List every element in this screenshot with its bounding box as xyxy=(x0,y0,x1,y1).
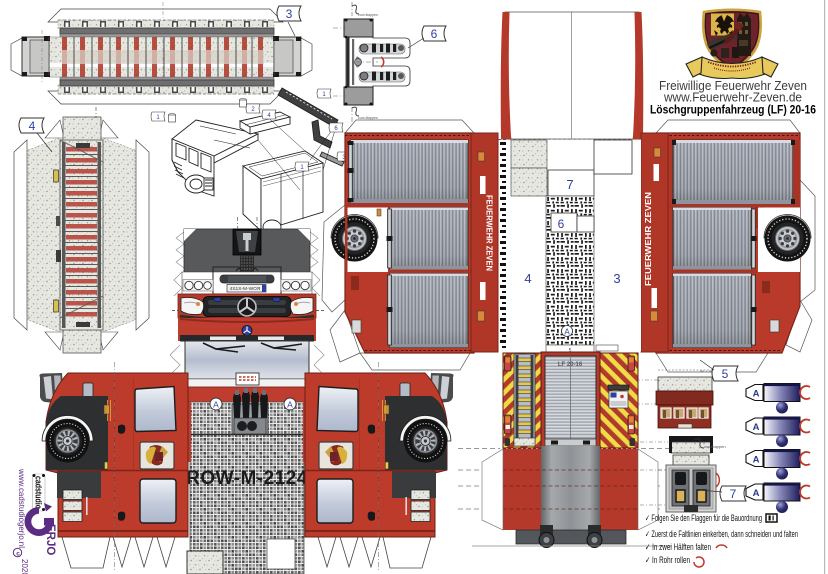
svg-text:A: A xyxy=(213,400,219,410)
svg-text:LF 20-16: LF 20-16 xyxy=(558,362,583,368)
svg-text:✓ In zwei Hälften falten: ✓ In zwei Hälften falten xyxy=(645,542,711,552)
svg-text:6: 6 xyxy=(558,217,565,231)
svg-text:c: c xyxy=(16,551,20,558)
svg-text:FEUERWEHR ZEVEN: FEUERWEHR ZEVEN xyxy=(644,192,653,286)
svg-text:3: 3 xyxy=(286,7,293,21)
svg-text:FEUERWEHR ZEVEN: FEUERWEHR ZEVEN xyxy=(485,195,494,271)
svg-text:6: 6 xyxy=(431,27,438,41)
svg-text:zum klappen: zum klappen xyxy=(358,13,378,17)
svg-text:4: 4 xyxy=(524,271,531,286)
svg-text:ERJO: ERJO xyxy=(44,524,56,555)
svg-text:5: 5 xyxy=(722,367,729,381)
svg-text:7: 7 xyxy=(566,177,573,192)
svg-text:✓ In Rohr rollen: ✓ In Rohr rollen xyxy=(645,555,690,565)
svg-text:✓ Folgen Sie den Flaggen für d: ✓ Folgen Sie den Flaggen für die Bauordn… xyxy=(645,513,762,523)
svg-text:zum klappen: zum klappen xyxy=(358,116,378,120)
svg-text:2020: 2020 xyxy=(20,559,29,574)
svg-text:A: A xyxy=(564,328,570,337)
svg-text:✓ Zuerst die Faltlinien einker: ✓ Zuerst die Faltlinien einkerben, dann … xyxy=(645,529,798,539)
svg-text:A: A xyxy=(287,400,293,410)
svg-text:cadstudio: cadstudio xyxy=(33,476,44,509)
svg-text:3: 3 xyxy=(613,271,620,286)
svg-text:4S1S-M-WOЯ: 4S1S-M-WOЯ xyxy=(230,286,261,292)
svg-text:zumklappen: zumklappen xyxy=(704,444,726,449)
svg-text:ROW-M-2124: ROW-M-2124 xyxy=(186,468,308,489)
svg-text:www.cadstudiogerjo.nl: www.cadstudiogerjo.nl xyxy=(17,468,26,548)
svg-text:7: 7 xyxy=(730,487,737,501)
svg-text:Löschgruppenfahrzeug (LF) 20-1: Löschgruppenfahrzeug (LF) 20-16 xyxy=(650,103,816,117)
svg-text:4: 4 xyxy=(29,119,36,133)
